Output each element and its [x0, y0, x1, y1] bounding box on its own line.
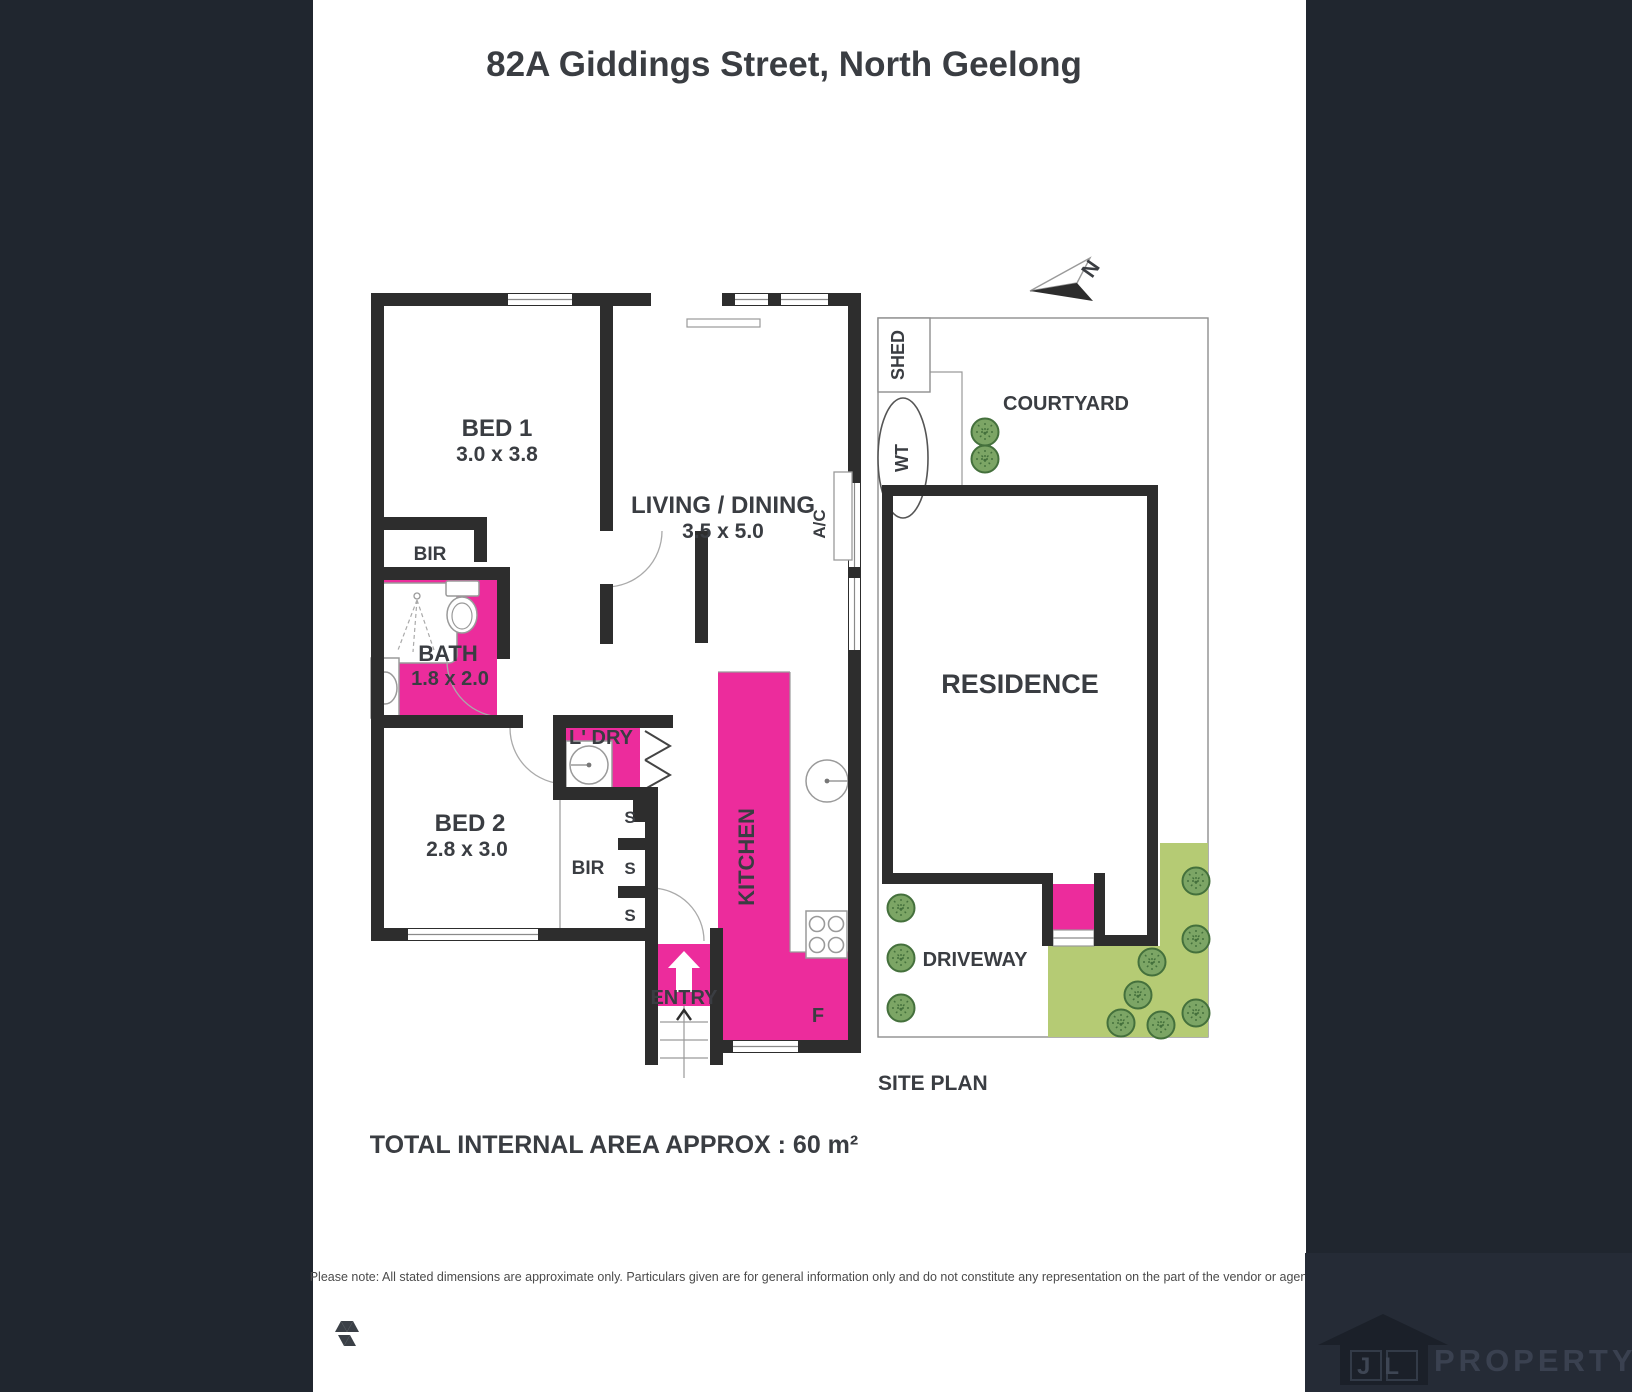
- cupboard-s2: S: [624, 859, 635, 878]
- residence-label: RESIDENCE: [941, 669, 1099, 699]
- total-area-label: TOTAL INTERNAL AREA APPROX : 60 m²: [370, 1131, 858, 1159]
- bath-dims: 1.8 x 2.0: [411, 668, 489, 690]
- bifold-door-icon: [645, 760, 670, 789]
- entry-label: ENTRY: [650, 987, 718, 1009]
- bir2-label: BIR: [572, 858, 605, 879]
- laundry-label: L' DRY: [569, 727, 634, 749]
- bed2-dims: 2.8 x 3.0: [426, 838, 508, 861]
- tree-icon: [1183, 926, 1210, 953]
- right-band: [1306, 0, 1632, 1392]
- courtyard-label: COURTYARD: [1003, 393, 1129, 415]
- porch-zone: [1053, 884, 1094, 930]
- cooktop: [806, 911, 847, 958]
- tree-icon: [1183, 868, 1210, 895]
- fridge-label: F: [812, 1005, 824, 1027]
- tree-icon: [972, 419, 999, 446]
- bed1-dims: 3.0 x 3.8: [456, 443, 538, 466]
- tree-icon: [888, 945, 915, 972]
- floor-plan: BED 1 3.0 x 3.8 LIVING / DINING 3.5 x 5.…: [370, 293, 861, 1159]
- tree-icon: [1183, 1000, 1210, 1027]
- water-tank-label: WT: [892, 444, 912, 472]
- bir1-label: BIR: [414, 544, 447, 565]
- kitchen-label: KITCHEN: [734, 808, 759, 906]
- left-band: [0, 0, 313, 1392]
- tree-icon: [888, 995, 915, 1022]
- brand-name: PROPERTY: [1434, 1343, 1632, 1378]
- north-label: N: [1077, 256, 1105, 282]
- living-dims: 3.5 x 5.0: [682, 520, 764, 543]
- bath-label: BATH: [418, 641, 477, 666]
- bed1-label: BED 1: [462, 415, 533, 442]
- kitchen-sink: [806, 760, 848, 802]
- tree-icon: [1139, 949, 1166, 976]
- tree-icon: [1125, 982, 1152, 1009]
- brand-initials: JL: [1357, 1353, 1413, 1380]
- north-arrow-icon: N: [1030, 256, 1105, 301]
- tree-icon: [1108, 1010, 1135, 1037]
- floorplan-page: 82A Giddings Street, North Geelong: [0, 0, 1632, 1392]
- cupboard-s1: S: [624, 808, 635, 827]
- site-plan-title: SITE PLAN: [878, 1072, 988, 1095]
- entry-door-arc: [651, 888, 704, 941]
- agency-emblem-icon: [335, 1321, 359, 1346]
- disclaimer-note: Please note: All stated dimensions are a…: [310, 1270, 1315, 1284]
- tree-icon: [1148, 1012, 1175, 1039]
- floorplan-canvas: 82A Giddings Street, North Geelong: [0, 0, 1632, 1392]
- window-above: [687, 319, 760, 327]
- bed2-label: BED 2: [435, 810, 506, 837]
- site-plan: SHED WT COURTYARD RESIDENCE DRIVEWAY: [878, 256, 1210, 1095]
- entry-steps: [660, 1006, 708, 1078]
- bifold-door-icon: [645, 731, 670, 760]
- kitchen-bottom-zone: [718, 952, 848, 1040]
- ac-unit: [834, 472, 852, 560]
- ac-label: A/C: [810, 509, 829, 538]
- shed-label: SHED: [888, 330, 908, 380]
- bed1-door-arc: [606, 531, 662, 587]
- living-label: LIVING / DINING: [631, 492, 815, 519]
- toilet: [446, 581, 479, 633]
- cupboard-s3: S: [624, 906, 635, 925]
- tree-icon: [972, 446, 999, 473]
- tree-icon: [888, 895, 915, 922]
- page-title: 82A Giddings Street, North Geelong: [486, 45, 1082, 84]
- brand-block: JL PROPERTY: [1305, 1253, 1632, 1392]
- driveway-label: DRIVEWAY: [923, 949, 1029, 971]
